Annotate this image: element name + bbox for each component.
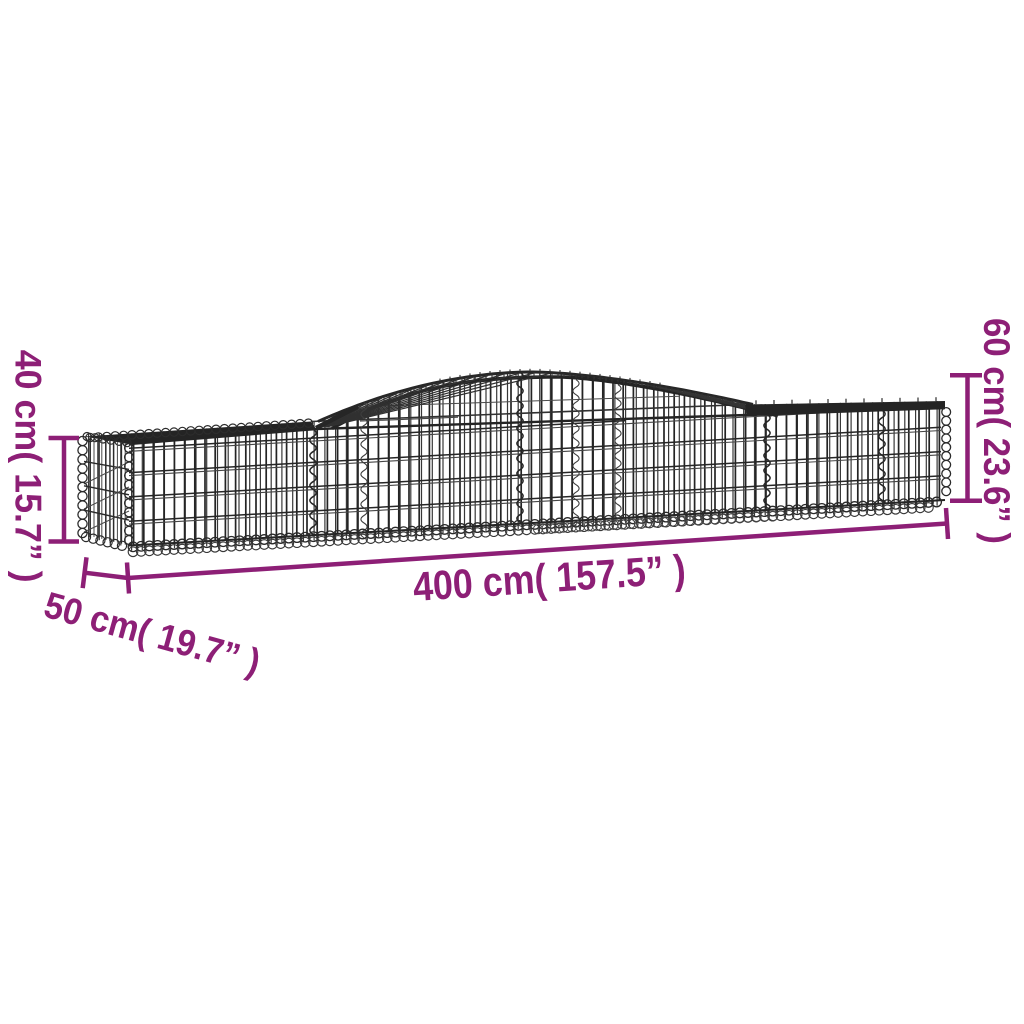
svg-text:40 cm( 15.7” ): 40 cm( 15.7” ) xyxy=(8,350,49,583)
svg-text:50 cm( 19.7” ): 50 cm( 19.7” ) xyxy=(40,584,265,683)
svg-text:60 cm( 23.6” ): 60 cm( 23.6” ) xyxy=(976,318,1017,544)
